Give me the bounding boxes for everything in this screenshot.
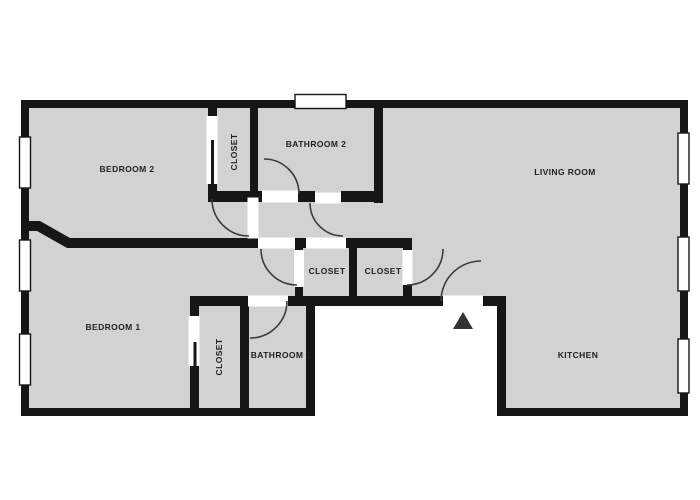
room-label-living-room: LIVING ROOM xyxy=(534,167,596,177)
room-label-bedroom-2: BEDROOM 2 xyxy=(99,164,154,174)
room-label-kitchen: KITCHEN xyxy=(558,350,599,360)
room-label-bathroom-1: BATHROOM 1 xyxy=(251,350,312,360)
room-label-closet-mid-left: CLOSET xyxy=(309,266,346,276)
room-label-closet-mid-right: CLOSET xyxy=(365,266,402,276)
sliding-door-top-closet xyxy=(207,116,218,190)
floor-plan: BEDROOM 2 CLOSET BATHROOM 2 LIVING ROOM … xyxy=(0,0,700,500)
room-label-bedroom-1: BEDROOM 1 xyxy=(85,322,140,332)
floor-plan-canvas xyxy=(0,0,700,500)
room-label-closet-top: CLOSET xyxy=(229,134,239,171)
room-label-closet-bottom: CLOSET xyxy=(214,339,224,376)
room-label-bathroom-2: BATHROOM 2 xyxy=(286,139,347,149)
